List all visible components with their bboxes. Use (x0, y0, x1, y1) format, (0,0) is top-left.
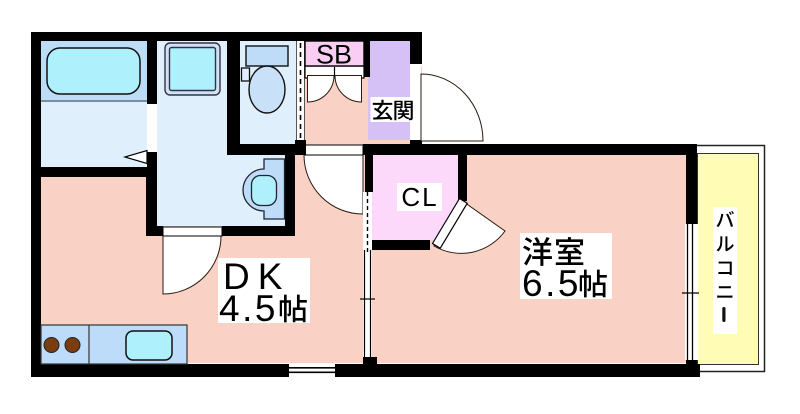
svg-text:CL: CL (401, 182, 438, 212)
svg-text:SB: SB (316, 40, 352, 70)
svg-text:4.5: 4.5 (219, 288, 278, 329)
svg-text:6.5: 6.5 (522, 263, 581, 304)
